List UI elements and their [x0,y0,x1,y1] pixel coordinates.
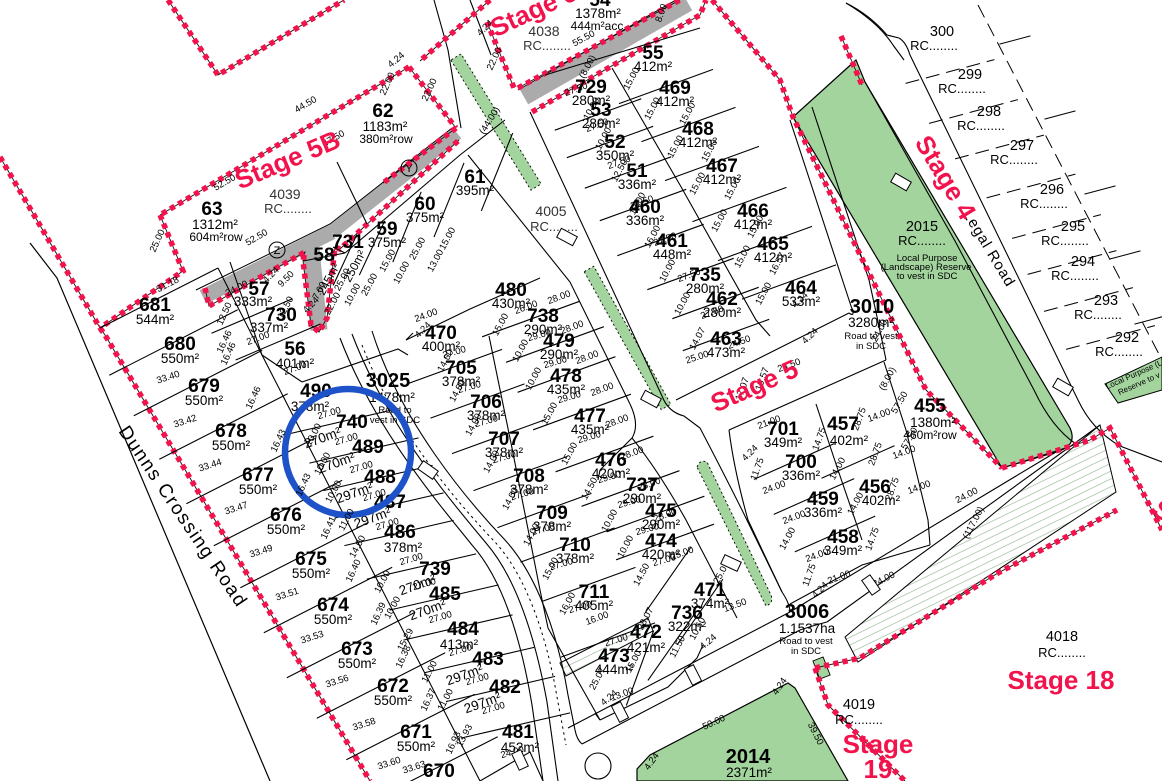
svg-text:3006: 3006 [785,601,830,623]
svg-text:395m²: 395m² [456,183,495,198]
svg-text:1.1537ha: 1.1537ha [779,621,836,636]
svg-text:RC........: RC........ [1074,307,1122,322]
svg-text:349m²: 349m² [764,435,803,450]
svg-text:RC........: RC........ [1038,645,1086,660]
svg-text:RC........: RC........ [990,152,1038,167]
svg-text:550m²: 550m² [161,351,200,366]
svg-text:380m²row: 380m²row [359,132,413,146]
svg-text:RC........: RC........ [898,233,946,248]
svg-text:RC........: RC........ [523,38,571,53]
svg-text:550m²: 550m² [314,612,353,627]
svg-text:RC........: RC........ [1095,344,1143,359]
svg-text:19: 19 [864,754,893,781]
svg-text:RC........: RC........ [957,118,1005,133]
svg-text:336m²: 336m² [782,468,821,483]
svg-text:Stage 18: Stage 18 [1008,665,1115,695]
svg-text:3025: 3025 [366,370,411,392]
svg-text:550m²: 550m² [338,656,377,671]
svg-text:4019: 4019 [843,697,875,713]
svg-text:Z: Z [274,245,281,257]
svg-text:RC........: RC........ [264,201,312,216]
svg-text:RC........: RC........ [910,38,958,53]
svg-text:RC........: RC........ [835,712,883,727]
svg-text:RC........: RC........ [1051,268,1099,283]
svg-text:in SDC: in SDC [791,646,821,657]
svg-text:604m²row: 604m²row [189,230,243,244]
svg-text:2371m²: 2371m² [726,765,772,780]
svg-text:402m²: 402m² [830,433,869,448]
svg-text:544m²: 544m² [136,312,175,327]
svg-text:550m²: 550m² [374,693,413,708]
svg-text:336m²: 336m² [618,177,657,192]
svg-text:RC........: RC........ [938,81,986,96]
svg-text:4018: 4018 [1046,629,1078,645]
svg-text:4039: 4039 [269,186,300,202]
svg-text:550m²: 550m² [185,393,224,408]
svg-text:336m²: 336m² [626,213,665,228]
svg-text:4005: 4005 [535,203,566,219]
svg-text:444m²acc: 444m²acc [571,19,624,33]
svg-text:550m²: 550m² [212,438,251,453]
svg-text:Y: Y [405,163,413,175]
svg-text:550m²: 550m² [292,566,331,581]
svg-text:333m²: 333m² [234,294,273,309]
svg-text:RC........: RC........ [530,219,578,234]
svg-text:336m²: 336m² [804,505,843,520]
svg-text:550m²: 550m² [239,482,278,497]
svg-text:455: 455 [914,396,946,417]
svg-text:550m²: 550m² [397,739,436,754]
svg-text:vest in SDC: vest in SDC [370,415,420,426]
svg-text:in SDC: in SDC [856,341,886,352]
svg-text:RC........: RC........ [1020,196,1068,211]
svg-text:670: 670 [423,761,455,781]
svg-text:RC........: RC........ [1041,233,1089,248]
svg-text:375m²: 375m² [406,210,445,225]
svg-text:to vest in SDC: to vest in SDC [897,271,958,282]
svg-text:550m²: 550m² [267,522,306,537]
